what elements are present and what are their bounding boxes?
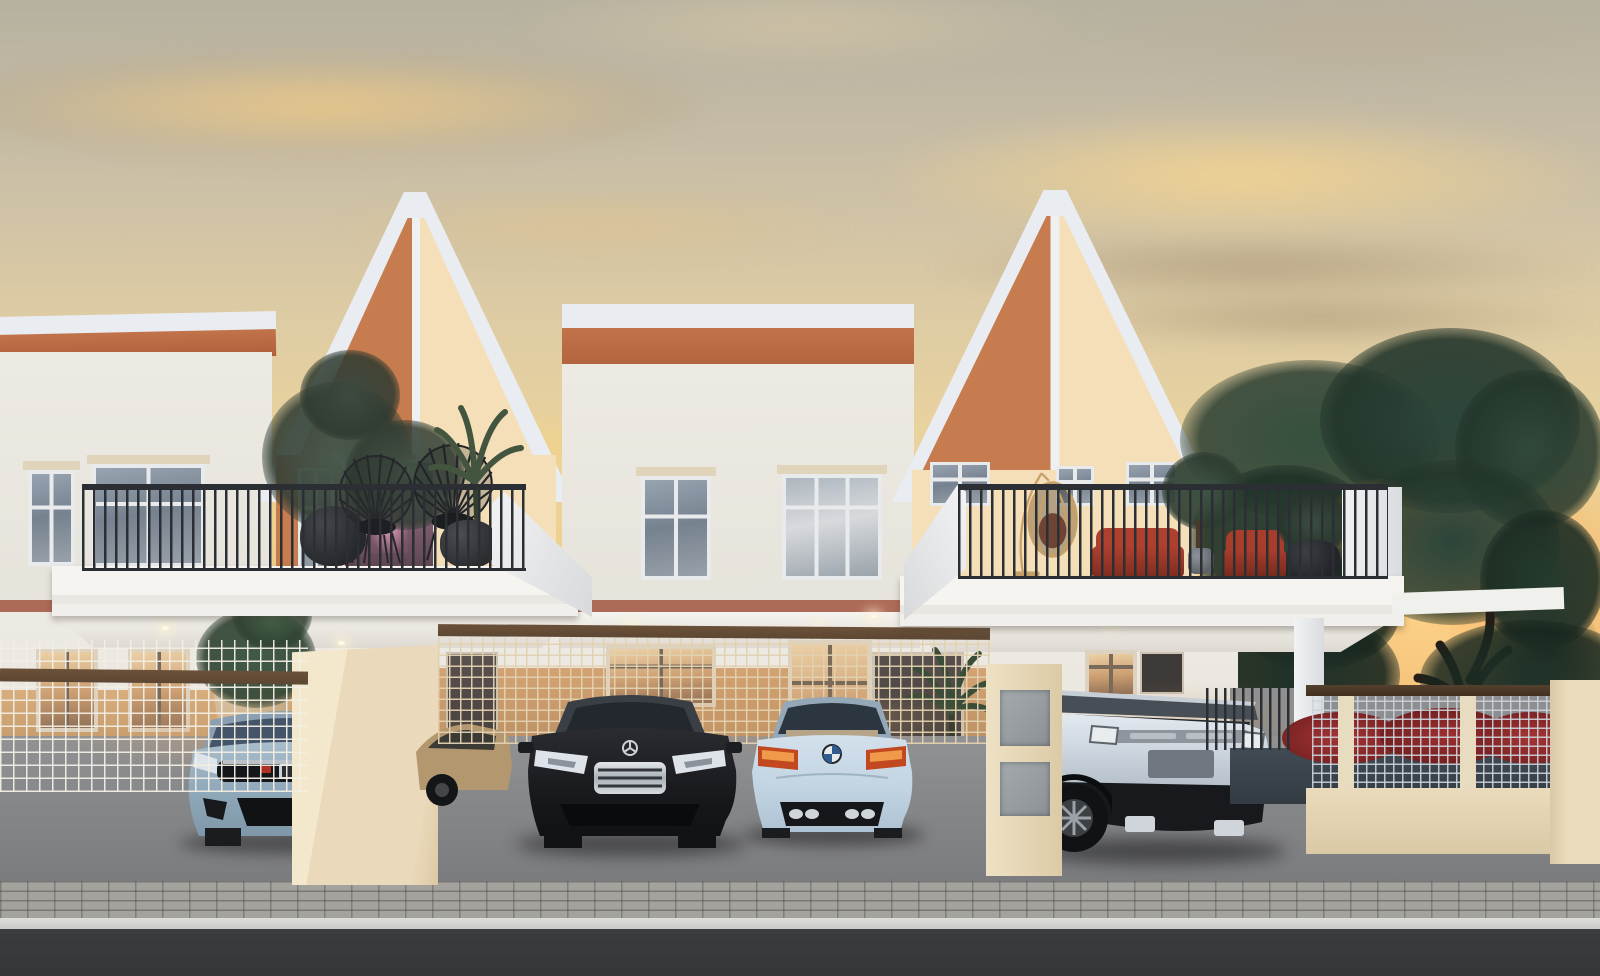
asphalt-road (0, 929, 1600, 976)
railing-bottom-rail (958, 576, 1388, 579)
mercedes-s-class (518, 678, 742, 850)
right-balcony-deck (900, 576, 1404, 626)
center-window-2 (782, 474, 882, 580)
railing-bottom-rail (82, 568, 526, 571)
downlight (338, 641, 345, 645)
wood-rail-right (1306, 685, 1558, 696)
left-balcony-railing (82, 487, 526, 571)
cloud (880, 110, 1600, 240)
right-balcony-railing (958, 487, 1388, 579)
sunset-townhouse-rendering (0, 0, 1600, 976)
curb (0, 918, 1600, 929)
paver-sidewalk (0, 881, 1600, 918)
gate-pillar-panel (1000, 690, 1050, 746)
mesh-fence-left (0, 640, 308, 792)
left-unit-window-1 (28, 470, 75, 566)
fence-post (1338, 694, 1354, 794)
railing-top-rail (82, 484, 526, 490)
railing-top-rail (958, 484, 1388, 490)
center-orange-soffit (562, 328, 914, 366)
center-roof-trim (562, 304, 914, 330)
fence-post (1460, 694, 1476, 794)
bmw-m4 (746, 686, 918, 838)
downlight (870, 614, 877, 618)
beige-wall-far-right (1550, 680, 1600, 864)
dark-bar-fence (1206, 688, 1294, 750)
gate-pillar-panel (1000, 762, 1050, 816)
knee-wall-right (1306, 788, 1558, 854)
center-window-1 (641, 476, 711, 580)
downlight (162, 626, 169, 630)
left-balcony-deck (52, 566, 578, 616)
